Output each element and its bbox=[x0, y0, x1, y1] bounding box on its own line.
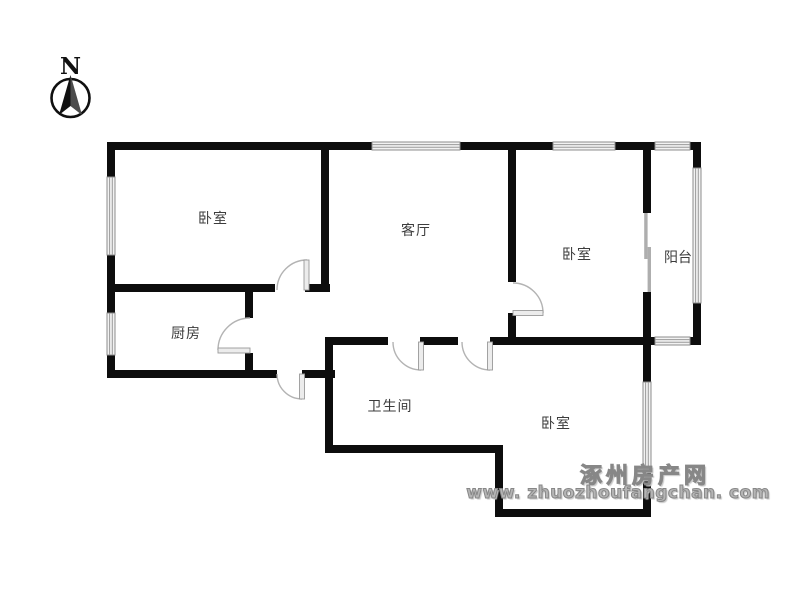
wall-bathroom-bottom bbox=[325, 445, 503, 453]
wall-bedroomnw-living bbox=[321, 142, 329, 292]
door-bathroom bbox=[393, 342, 424, 370]
room-label-bedroom-se: 卧室 bbox=[516, 416, 596, 433]
wall-bedroomne-balcony-a bbox=[643, 142, 651, 213]
door-entry bbox=[277, 374, 305, 399]
door-bedroom-nw bbox=[277, 260, 309, 290]
window-balcony-right bbox=[693, 168, 701, 303]
sliding-door-balcony bbox=[644, 213, 651, 292]
room-label-kitchen: 厨房 bbox=[146, 326, 226, 343]
doors bbox=[218, 260, 543, 399]
floor-plan-drawing: N bbox=[0, 0, 800, 600]
window-bedroomse-right bbox=[643, 382, 651, 468]
windows bbox=[107, 142, 701, 468]
room-label-bedroom-nw: 卧室 bbox=[173, 211, 253, 228]
wall-bathroom-left bbox=[325, 337, 333, 453]
window-balcony-top bbox=[655, 142, 690, 150]
room-label-living-room: 客厅 bbox=[376, 223, 456, 240]
wall-notch-vertical bbox=[495, 445, 503, 517]
window-bedroomnw-left bbox=[107, 177, 115, 255]
window-living-top bbox=[372, 142, 460, 150]
door-bedroom-se bbox=[462, 342, 493, 370]
room-label-bedroom-ne: 卧室 bbox=[537, 247, 617, 264]
room-label-bathroom: 卫生间 bbox=[350, 399, 430, 416]
window-kitchen-left bbox=[107, 313, 115, 355]
wall-southwest-a bbox=[107, 370, 277, 378]
window-balcony-bottom bbox=[655, 337, 690, 345]
wall-kitchen-right-a bbox=[245, 292, 253, 318]
wall-bottom bbox=[495, 509, 651, 517]
wall-mid-h1-a bbox=[107, 284, 275, 292]
wall-living-bedroomne-a bbox=[508, 142, 516, 282]
compass-north-icon: N bbox=[52, 53, 90, 117]
wall-mid-h2-a bbox=[325, 337, 388, 345]
watermark-site-url: www. zhuozhoufangchan. com bbox=[466, 483, 770, 503]
wall-mid-h2-b bbox=[420, 337, 458, 345]
window-bedroomne-top bbox=[553, 142, 615, 150]
door-bedroom-ne bbox=[513, 283, 543, 316]
room-label-balcony: 阳台 bbox=[656, 250, 700, 267]
floor-plan-canvas: N 卧室 客厅 卧室 阳台 厨房 卫生间 卧室 涿州房产网 www. zhuoz… bbox=[0, 0, 800, 600]
